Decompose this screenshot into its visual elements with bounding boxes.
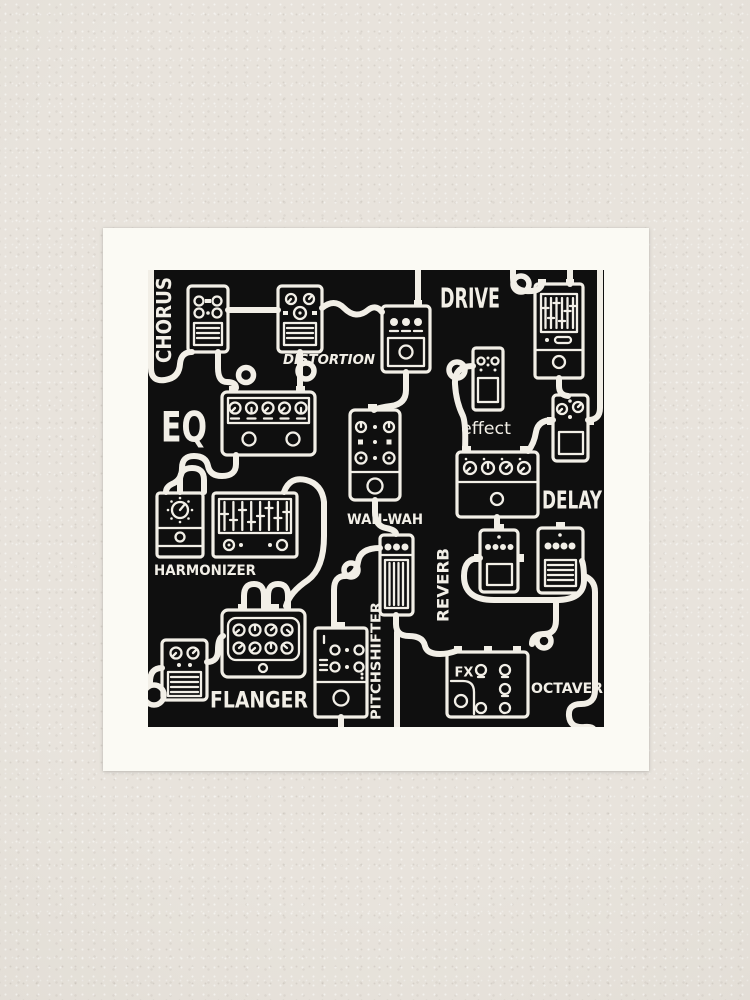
label-chorus: CHORUS: [152, 277, 176, 363]
label-wah-wah: WAH-WAH: [347, 512, 423, 528]
art-print-mat: FX CHORUS DISTORTION DRIVE EQ effect DEL…: [103, 228, 649, 771]
label-reverb: REVERB: [434, 548, 453, 622]
pedalboard-illustration: FX CHORUS DISTORTION DRIVE EQ effect DEL…: [148, 270, 604, 727]
pedal-bottom-left: [162, 640, 207, 700]
pedal-harmonizer-dial: [157, 493, 203, 557]
pedal-fx: FX: [447, 646, 528, 717]
label-drive: DRIVE: [440, 282, 500, 315]
pedal-reverb-a: [474, 524, 524, 592]
label-pitchshifter: PITCHSHIFTER: [370, 602, 385, 720]
pedal-distortion: [278, 286, 322, 352]
pedal-delay: [457, 446, 538, 517]
pedal-flanger: [222, 604, 305, 677]
product-photo: FX CHORUS DISTORTION DRIVE EQ effect DEL…: [0, 0, 750, 1000]
label-octaver: OCTAVER: [531, 681, 603, 697]
label-delay: DELAY: [542, 486, 603, 515]
label-fx: FX: [455, 666, 474, 681]
pedal-wah: [380, 535, 413, 615]
label-eq: EQ: [161, 403, 207, 452]
art-print: FX CHORUS DISTORTION DRIVE EQ effect DEL…: [148, 270, 604, 727]
pedal-effect-small: [473, 348, 503, 410]
pedal-multiknob-center: [350, 404, 400, 500]
pedal-eq: [222, 386, 315, 455]
pedal-drive-rack-sliders: [535, 279, 583, 378]
pedal-pitchshifter: [315, 622, 367, 717]
pedal-right-edge: [547, 395, 594, 461]
label-flanger: FLANGER: [210, 689, 308, 714]
pedal-drive: [382, 300, 430, 372]
label-effect: effect: [461, 419, 511, 439]
label-harmonizer: HARMONIZER: [154, 563, 256, 579]
pedal-chorus: [188, 286, 228, 352]
pedal-harmonizer-graphic-eq: [213, 493, 297, 557]
pedal-reverb-b: [538, 522, 583, 593]
label-distortion: DISTORTION: [283, 352, 376, 368]
